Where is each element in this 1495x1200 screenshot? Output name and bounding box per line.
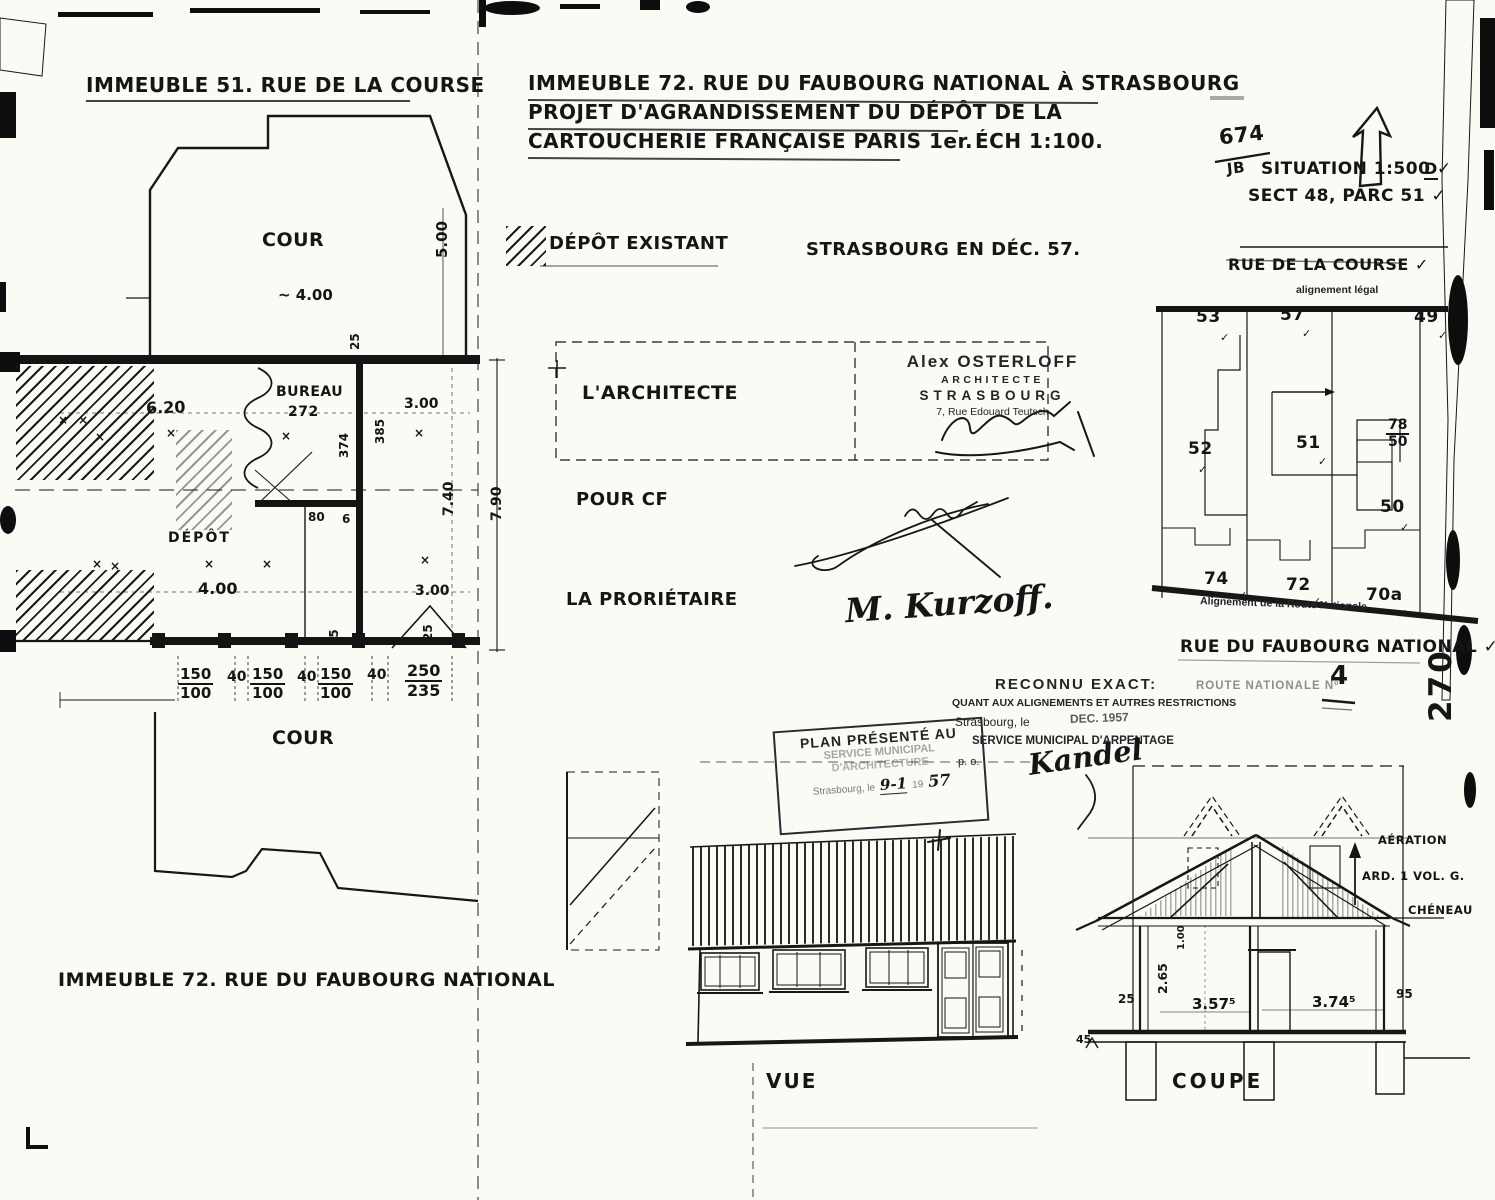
x-mark: × (58, 414, 69, 427)
dim-45: 45 (1076, 1034, 1091, 1046)
depot-label: DÉPÔT (168, 531, 231, 546)
place-date-label: STRASBOURG EN DÉC. 57. (806, 240, 1081, 260)
dim-7-90: 7.90 (490, 486, 505, 521)
main-title-line2: PROJET D'AGRANDISSEMENT DU DÉPÔT DE LA (528, 101, 1062, 123)
dim-385: 385 (374, 419, 387, 444)
stair-detail-linework (567, 772, 659, 950)
presente-day: 9-1 (879, 775, 907, 796)
parcel-50: 50 (1380, 498, 1405, 517)
reconnu-line2: QUANT AUX ALIGNEMENTS ET AUTRES RESTRICT… (952, 697, 1236, 709)
check-mark: ✓ (1198, 464, 1208, 476)
pour-cf-label: POUR CF (576, 490, 668, 510)
cour-bottom-label: COUR (272, 728, 334, 749)
main-title-line1: IMMEUBLE 72. RUE DU FAUBOURG NATIONAL À … (528, 72, 1240, 94)
dim-40: 40 (367, 668, 386, 683)
dim-frac-150-100: 150 100 (178, 666, 213, 701)
vue-label: VUE (766, 1070, 817, 1092)
ard-label: ARD. 1 VOL. G. (1362, 870, 1465, 883)
reconnu-line1: RECONNU EXACT: (995, 676, 1157, 693)
parcel-78-50-frac: 78 50 (1386, 418, 1409, 451)
x-mark: × (281, 430, 292, 443)
check-mark: ✓ (1400, 522, 1410, 534)
dim-6: 6 (342, 513, 350, 526)
parcel-53: 53 (1196, 308, 1221, 327)
frac-bottom: 100 (250, 685, 285, 702)
parcel-51: 51 (1296, 434, 1321, 453)
proprietaire-label: LA PRORIÉTAIRE (566, 590, 738, 610)
dim-3-57: 3.57⁵ (1192, 996, 1236, 1013)
dim-80: 80 (308, 511, 325, 524)
parcel-57: 57 (1280, 306, 1305, 325)
frac-top: 250 (405, 662, 442, 682)
x-mark: × (420, 554, 431, 567)
stamp-architect-address: 7, Rue Edouard Teutsch (880, 406, 1105, 418)
parcel-74: 74 (1204, 570, 1229, 589)
dim-4-00-approx: ~ 4.00 (278, 287, 333, 304)
ref-number: 674 (1218, 122, 1266, 150)
dim-frac-150-100: 150 100 (250, 666, 285, 701)
coupe-label: COUPE (1172, 1070, 1263, 1092)
aeration-label: AÉRATION (1378, 834, 1447, 847)
check-mark: ✓ (1398, 608, 1408, 620)
check-mark: ✓ (1318, 456, 1328, 468)
d-mark: D (1424, 160, 1438, 180)
check-mark: ✓ (1220, 332, 1230, 344)
architecte-label: L'ARCHITECTE (582, 383, 738, 404)
dim-4-00-b: 4.00 (198, 580, 237, 598)
dim-6-20: 6.20 (146, 398, 186, 417)
check-mark: ✓ (1302, 328, 1312, 340)
dim-95: 95 (1396, 988, 1413, 1001)
sect-parc-label: SECT 48, PARC 51 ✓ (1248, 187, 1446, 206)
x-mark: × (204, 558, 215, 571)
stamp-architect-name: Alex OSTERLOFF (880, 352, 1105, 372)
route-number: 4 (1330, 662, 1349, 691)
parcel-72: 72 (1286, 576, 1311, 595)
x-mark: × (92, 558, 103, 571)
rue-de-la-course-label: RUE DE LA COURSE ✓ (1228, 256, 1429, 274)
plan51-title: IMMEUBLE 51. RUE DE LA COURSE (86, 74, 485, 96)
frac-bottom: 100 (178, 685, 213, 702)
stamp-architect-city: STRASBOURG (880, 388, 1105, 404)
frac-top: 78 (1386, 418, 1409, 435)
bureau-number: 272 (288, 405, 319, 420)
title-underlines (86, 100, 1420, 710)
parcel-70a: 70a (1366, 586, 1403, 605)
x-mark: × (95, 431, 106, 444)
scanned-architectural-sheet: IMMEUBLE 51. RUE DE LA COURSE COUR ~ 4.0… (0, 0, 1495, 1200)
coupe-section-linework (1076, 766, 1470, 1100)
frac-top: 150 (178, 666, 213, 685)
floor-plan-51-linework (15, 116, 505, 901)
frac-top: 150 (250, 666, 285, 685)
situation-label: SITUATION 1:500 ✓ (1261, 160, 1452, 179)
vue-roof-stripes (692, 836, 1014, 946)
dim-7-40: 7.40 (442, 481, 457, 516)
legend-hatch-swatch (506, 226, 546, 266)
dim-40: 40 (227, 670, 246, 685)
frac-bottom: 50 (1386, 435, 1409, 450)
presente-year: 57 (928, 771, 952, 792)
frac-bottom: 235 (405, 682, 442, 700)
dim-25-coupe: 25 (1118, 993, 1135, 1006)
stamp-architect-role: ARCHITECTE (880, 374, 1105, 386)
depot-hatch (176, 430, 232, 530)
legend-depot-existant: DÉPÔT EXISTANT (549, 234, 728, 254)
x-mark: × (78, 414, 89, 427)
dim-374: 374 (338, 433, 351, 458)
plan72-bottom-label: IMMEUBLE 72. RUE DU FAUBOURG NATIONAL (58, 970, 555, 991)
dim-3-00-b: 3.00 (415, 584, 450, 599)
main-title-line3: CARTOUCHERIE FRANÇAISE PARIS 1er. (528, 130, 973, 152)
route-nationale-label: ROUTE NATIONALE Nº (1196, 680, 1339, 693)
scale-label: ÉCH 1:100. (975, 130, 1103, 152)
dim-25-b: 25 (328, 629, 341, 646)
presente-line4: Strasbourg, le (813, 783, 876, 798)
frac-bottom: 100 (318, 685, 353, 702)
ref-denominator: JB (1226, 159, 1246, 177)
sheet-number: 270 (1424, 648, 1458, 722)
parcel-49: 49 (1414, 308, 1439, 327)
dim-3-00-a: 3.00 (404, 397, 439, 412)
x-mark: × (262, 558, 273, 571)
dim-1-00: 1.00 (1176, 925, 1187, 950)
bureau-label: BUREAU (276, 385, 343, 400)
cheneau-label: CHÉNEAU (1408, 904, 1473, 917)
dim-5-00: 5.00 (434, 221, 451, 258)
x-mark: × (166, 427, 177, 440)
alignement-legal-label: alignement légal (1296, 284, 1378, 296)
frac-top: 150 (318, 666, 353, 685)
x-mark: × (414, 427, 425, 440)
parcel-52: 52 (1188, 440, 1213, 459)
dim-40: 40 (297, 670, 316, 685)
cour-top-label: COUR (262, 230, 324, 251)
plan-presente-stamp: PLAN PRÉSENTÉ AU SERVICE MUNICIPAL D'ARC… (773, 717, 990, 835)
presente-year-prefix: 19 (912, 779, 924, 791)
dim-2-65: 2.65 (1156, 963, 1170, 994)
dim-frac-150-100: 150 100 (318, 666, 353, 701)
wall-hatch-lower (16, 570, 154, 640)
dim-frac-250-235: 250 235 (405, 662, 442, 699)
dim-3-74: 3.74⁵ (1312, 994, 1356, 1011)
reconnu-date: DEC. 1957 (1070, 711, 1129, 727)
dim-25-c: 25 (422, 624, 435, 641)
check-mark: ✓ (1438, 330, 1448, 342)
dim-25-top: 25 (349, 333, 362, 350)
x-mark: × (110, 560, 121, 573)
